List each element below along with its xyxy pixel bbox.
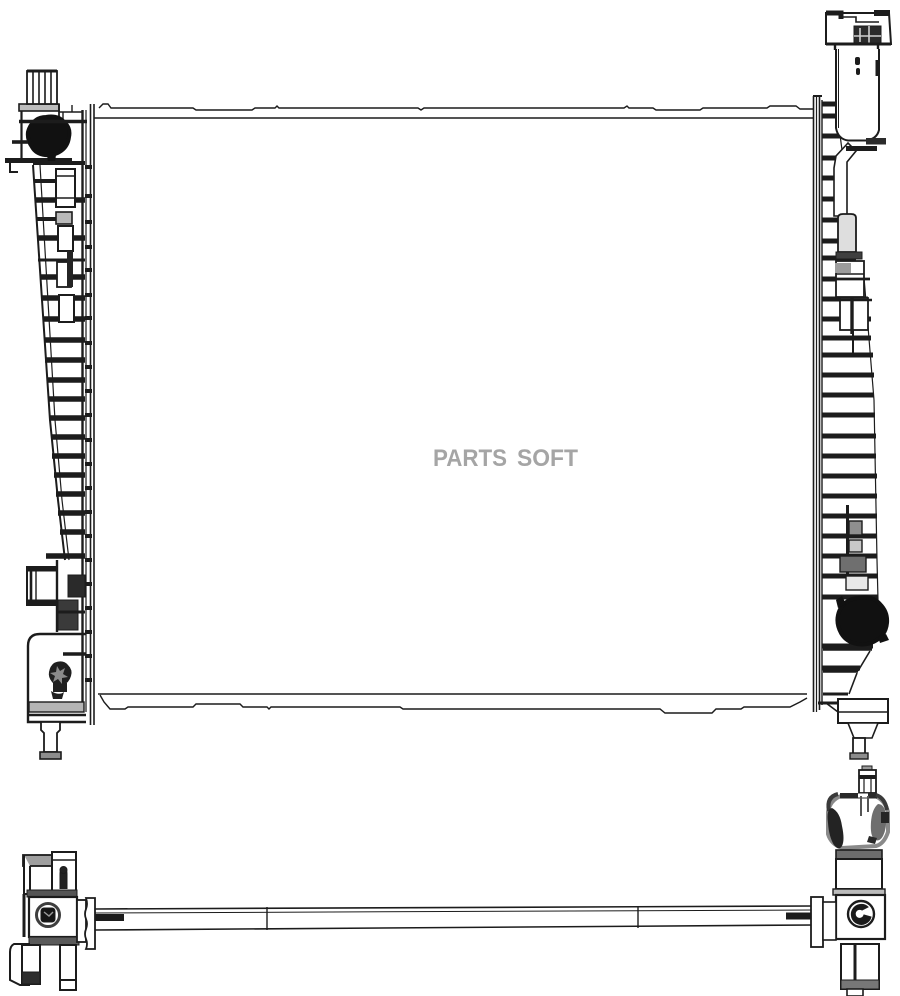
svg-text:PARTS: PARTS: [433, 445, 507, 472]
svg-text:SOFT: SOFT: [517, 445, 578, 472]
